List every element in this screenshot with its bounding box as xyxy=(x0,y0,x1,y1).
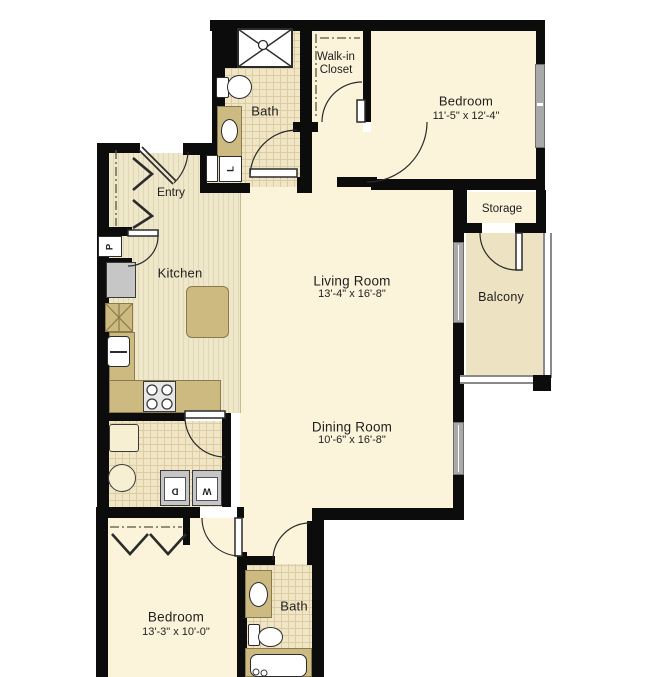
walk-in-closet-floor xyxy=(312,31,363,132)
shower xyxy=(237,28,293,68)
walk-in-closet-label-line2: Closet xyxy=(320,64,353,76)
washer: W xyxy=(192,470,222,506)
bedroom-upper-label: Bedroom xyxy=(439,94,493,109)
wall-storage-bottom-b xyxy=(515,223,546,233)
storage-label: Storage xyxy=(482,203,522,215)
bedroom-upper-dims: 11'-5" x 12'-4" xyxy=(433,110,500,122)
wall-bath-lower-right xyxy=(312,508,324,677)
kitchen-sink xyxy=(107,336,130,367)
dining-room-dims: 10'-6" x 16'-8" xyxy=(318,434,386,446)
wall-dining-bottom xyxy=(318,508,464,520)
wall-pantry-top xyxy=(97,227,132,236)
wall-hall-left-stub xyxy=(300,132,312,187)
wall-bedroom-lower-left xyxy=(96,507,108,677)
linen-closet-label: L xyxy=(225,166,236,172)
laundry-table xyxy=(109,424,139,452)
bedroom-upper-window xyxy=(535,64,545,148)
wall-laundry-bottom-b xyxy=(237,507,244,518)
stove xyxy=(143,381,176,412)
living-dining-floor xyxy=(240,187,453,508)
wall-storage-bottom-a xyxy=(458,223,482,233)
wall-closet-bedroom-divider xyxy=(363,20,371,122)
wall-linen-bottom xyxy=(200,183,250,193)
dining-window xyxy=(453,422,464,475)
balcony-rail-right xyxy=(543,233,552,378)
bath-lower-label: Bath xyxy=(280,599,308,614)
balcony-floor xyxy=(466,233,545,378)
water-heater xyxy=(108,464,136,492)
linen-closet-b: L xyxy=(219,156,242,182)
dryer-label: D xyxy=(172,485,179,496)
balcony-label: Balcony xyxy=(478,290,524,304)
kitchen-cabinet-crosshatch xyxy=(105,303,133,332)
washer-label: W xyxy=(203,485,212,496)
wall-dining-right-b xyxy=(453,323,464,422)
toilet-upper-bowl xyxy=(227,75,252,99)
kitchen-island xyxy=(186,286,229,338)
bedroom-lower-dims: 13'-3" x 10'-0" xyxy=(142,626,210,638)
wall-dining-right-c xyxy=(453,475,464,520)
kitchen-label: Kitchen xyxy=(158,266,203,281)
entry-label: Entry xyxy=(157,185,185,199)
bedroom-lower-floor xyxy=(108,518,237,677)
balcony-corner-post xyxy=(533,375,551,391)
vanity-upper-sink xyxy=(221,119,238,143)
balcony-rail-bottom xyxy=(460,375,544,384)
toilet-lower-bowl xyxy=(258,627,283,647)
bathtub xyxy=(250,654,307,677)
dryer: D xyxy=(160,470,190,506)
wall-laundry-right xyxy=(222,413,231,507)
bedroom-lower-label: Bedroom xyxy=(148,610,204,625)
living-room-label: Living Room xyxy=(313,274,390,289)
wall-laundry-top xyxy=(103,413,185,421)
floor-plan: L P D W xyxy=(0,0,650,677)
wall-hall-bottom-stub xyxy=(337,177,377,187)
wall-bath-lower-top xyxy=(237,556,275,565)
dining-room-label: Dining Room xyxy=(312,420,392,435)
bath-upper-label: Bath xyxy=(251,104,279,119)
pantry-closet: P xyxy=(98,236,122,257)
balcony-sliding-door xyxy=(453,242,464,323)
living-room-dims: 13'-4" x 16'-8" xyxy=(318,288,386,300)
vanity-lower-sink xyxy=(249,582,268,607)
wall-bedroom-upper-right-a xyxy=(536,20,545,66)
walk-in-closet-label-line1: Walk-in xyxy=(317,51,355,63)
pantry-label: P xyxy=(105,243,116,249)
linen-closet-a xyxy=(206,155,218,182)
wall-bath-closet-divider xyxy=(300,20,312,132)
wall-closet-bottom xyxy=(293,122,318,132)
wall-bedroom-lower-closet-stub xyxy=(183,507,190,545)
refrigerator xyxy=(106,262,136,298)
